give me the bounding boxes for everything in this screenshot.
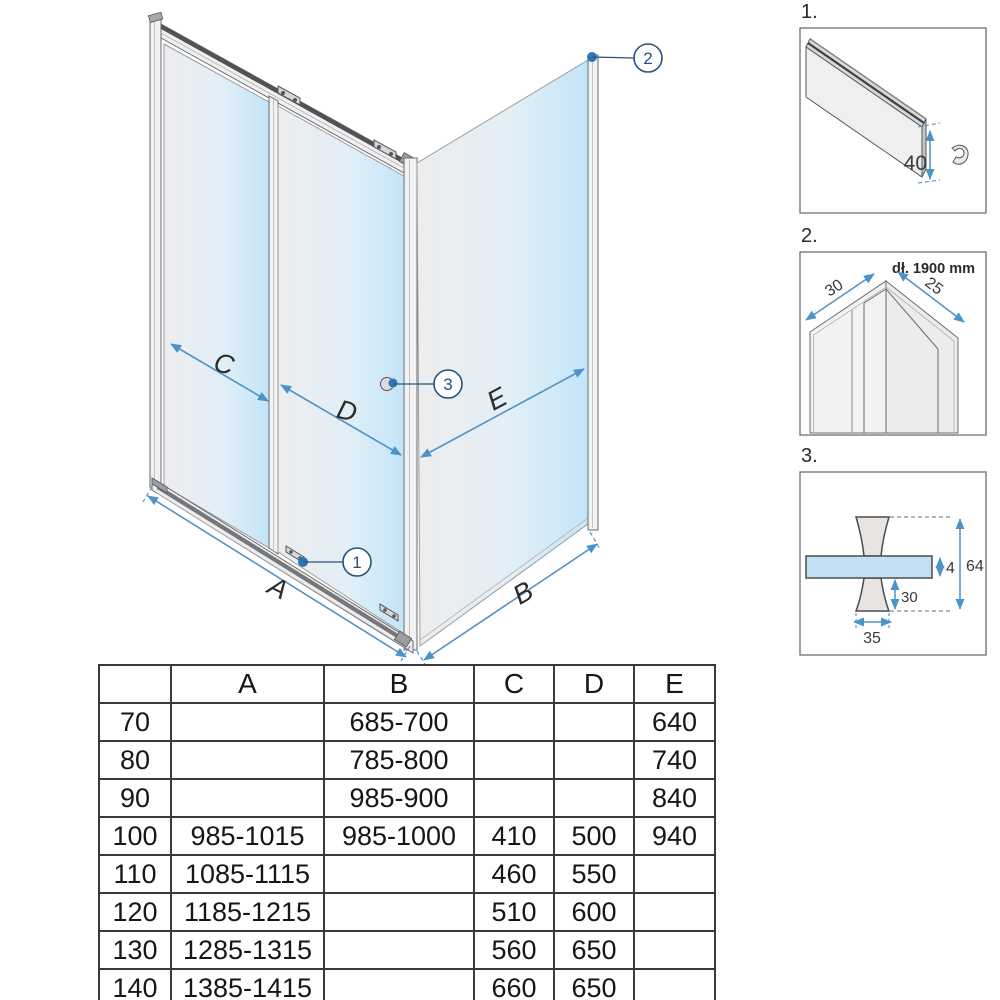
dimension-label-b: B xyxy=(508,576,539,611)
value-cell: 785-800 xyxy=(324,741,474,779)
value-cell xyxy=(554,703,634,741)
value-cell xyxy=(634,969,715,1000)
fixed-glass-panel xyxy=(164,44,269,548)
table-header-row: A B C D E xyxy=(99,665,715,703)
header-cell-d: D xyxy=(554,665,634,703)
size-cell: 80 xyxy=(99,741,171,779)
size-cell: 90 xyxy=(99,779,171,817)
size-cell: 70 xyxy=(99,703,171,741)
table-row: 70 685-700 640 xyxy=(99,703,715,741)
table-row: 110 1085-1115 460 550 xyxy=(99,855,715,893)
size-cell: 100 xyxy=(99,817,171,855)
value-cell xyxy=(474,741,554,779)
detail-3-width-value: 35 xyxy=(863,630,881,647)
value-cell: 660 xyxy=(474,969,554,1000)
value-cell xyxy=(171,703,324,741)
size-cell: 120 xyxy=(99,893,171,931)
value-cell: 985-900 xyxy=(324,779,474,817)
right-wall-profile xyxy=(588,55,598,530)
header-cell-e: E xyxy=(634,665,715,703)
page: C D E A B 1 xyxy=(0,0,1000,1000)
technical-drawing: C D E A B 1 xyxy=(0,0,1000,664)
value-cell: 940 xyxy=(634,817,715,855)
size-table: A B C D E 70 685-700 640 80 785-800 740 … xyxy=(98,664,716,1000)
value-cell: 685-700 xyxy=(324,703,474,741)
detail-box-1: 1. 40 xyxy=(800,1,986,213)
door-leading-stile xyxy=(269,96,278,554)
value-cell: 640 xyxy=(634,703,715,741)
left-wall-profile xyxy=(148,12,162,487)
size-cell: 140 xyxy=(99,969,171,1000)
value-cell: 985-1015 xyxy=(171,817,324,855)
value-cell: 410 xyxy=(474,817,554,855)
value-cell xyxy=(324,855,474,893)
detail-box-3: 3. 4 64 30 35 xyxy=(800,445,986,655)
header-cell-c: C xyxy=(474,665,554,703)
table-row: 80 785-800 740 xyxy=(99,741,715,779)
value-cell xyxy=(324,969,474,1000)
value-cell xyxy=(324,931,474,969)
value-cell: 740 xyxy=(634,741,715,779)
detail-2-label: 2. xyxy=(801,225,818,247)
shower-enclosure-view: C D E A B 1 xyxy=(143,12,662,664)
value-cell: 985-1000 xyxy=(324,817,474,855)
value-cell: 560 xyxy=(474,931,554,969)
value-cell: 1185-1215 xyxy=(171,893,324,931)
value-cell: 650 xyxy=(554,931,634,969)
value-cell xyxy=(634,855,715,893)
detail-box-2: 2. dł. 1900 mm 30 25 xyxy=(800,225,986,435)
value-cell: 840 xyxy=(634,779,715,817)
header-cell-a: A xyxy=(171,665,324,703)
value-cell xyxy=(324,893,474,931)
callout-3-number: 3 xyxy=(443,375,452,394)
detail-3-total-value: 64 xyxy=(966,558,984,575)
glass-section xyxy=(806,556,932,578)
value-cell: 1285-1315 xyxy=(171,931,324,969)
header-cell-b: B xyxy=(324,665,474,703)
value-cell xyxy=(634,931,715,969)
value-cell xyxy=(554,741,634,779)
value-cell xyxy=(171,741,324,779)
table-row: 90 985-900 840 xyxy=(99,779,715,817)
table-row: 140 1385-1415 660 650 xyxy=(99,969,715,1000)
callout-2-number: 2 xyxy=(643,49,652,68)
value-cell: 600 xyxy=(554,893,634,931)
size-cell: 110 xyxy=(99,855,171,893)
value-cell xyxy=(474,703,554,741)
detail-3-glass-value: 4 xyxy=(946,560,955,577)
table-row: 130 1285-1315 560 650 xyxy=(99,931,715,969)
value-cell xyxy=(554,779,634,817)
value-cell xyxy=(474,779,554,817)
side-glass-panel xyxy=(417,60,588,646)
detail-1-height-value: 40 xyxy=(904,152,927,175)
table-row: 120 1185-1215 510 600 xyxy=(99,893,715,931)
size-cell: 130 xyxy=(99,931,171,969)
value-cell: 1085-1115 xyxy=(171,855,324,893)
value-cell: 460 xyxy=(474,855,554,893)
value-cell: 500 xyxy=(554,817,634,855)
callout-1-number: 1 xyxy=(352,553,361,572)
corner-profile xyxy=(404,158,417,650)
value-cell: 550 xyxy=(554,855,634,893)
detail-3-label: 3. xyxy=(801,445,818,467)
detail-1-label: 1. xyxy=(801,1,818,23)
value-cell: 510 xyxy=(474,893,554,931)
value-cell xyxy=(171,779,324,817)
detail-3-lower-value: 30 xyxy=(901,589,918,606)
header-cell xyxy=(99,665,171,703)
table-row: 100 985-1015 985-1000 410 500 940 xyxy=(99,817,715,855)
value-cell: 650 xyxy=(554,969,634,1000)
value-cell xyxy=(634,893,715,931)
value-cell: 1385-1415 xyxy=(171,969,324,1000)
